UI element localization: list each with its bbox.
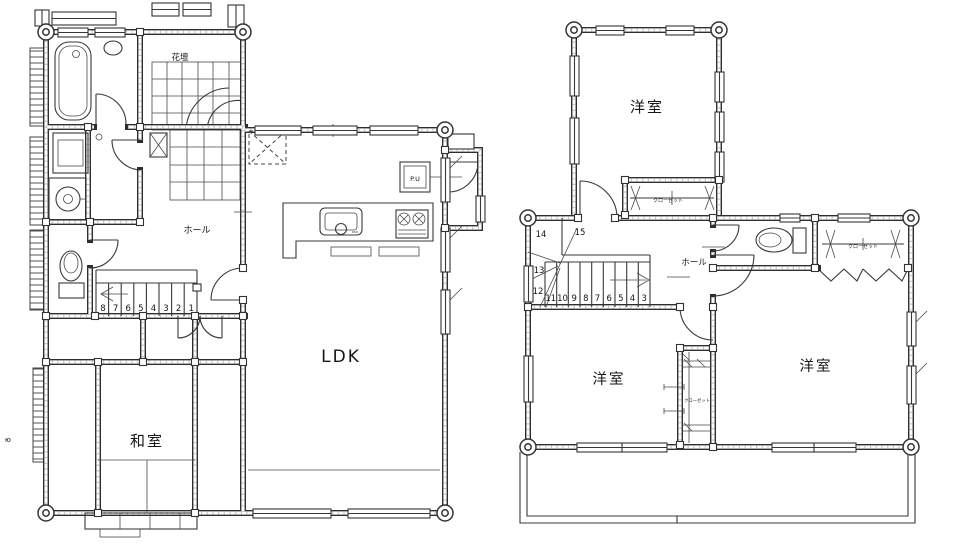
walls-1f	[46, 32, 480, 513]
stair-direction-arrow-1f	[101, 287, 128, 301]
bedroom-right-label: 洋室	[800, 358, 833, 375]
closet-middle	[664, 352, 711, 443]
ldk-label: LDK	[321, 347, 361, 367]
stair-number: 9	[571, 294, 576, 304]
floor-plan-canvas: 花壇 ホール LDK 和室 P.U 8 7 6 5 4 3 2 1	[0, 0, 959, 555]
hall-ldk-door	[211, 268, 243, 300]
stair-number: 13	[534, 266, 545, 276]
stair-number: 4	[151, 304, 156, 314]
stair-number: 10	[557, 294, 568, 304]
toilet-2f	[756, 228, 806, 253]
bedroom-top-door	[580, 181, 617, 218]
toilet-door-1f	[90, 240, 118, 268]
bathroom-door	[96, 94, 126, 124]
bath-sink	[104, 41, 122, 55]
washroom-door	[112, 140, 140, 170]
bedroom-left-door	[680, 307, 713, 340]
folding-doors	[818, 269, 908, 281]
stair-number: 8	[583, 294, 588, 304]
stair-number: 7	[595, 294, 600, 304]
storage-box-dashed	[249, 131, 286, 164]
windows-1f	[58, 28, 450, 518]
washroom	[49, 133, 140, 220]
stair-number: 11	[545, 294, 556, 304]
stair-number: 3	[163, 304, 168, 314]
stair-number: 5	[618, 294, 623, 304]
closet-right	[818, 230, 908, 281]
pipe-unit-label: P.U	[410, 175, 420, 183]
stair-number: 6	[606, 294, 611, 304]
stair-number: 5	[138, 304, 143, 314]
japanese-room-doors	[178, 316, 222, 338]
balcony	[520, 452, 915, 523]
floor2-plan: 洋室 クローゼット ホール 洋室 洋室 クローゼット クローゼット 11 10 …	[520, 22, 927, 523]
hall-2f-label: ホール	[681, 258, 707, 268]
floor-plan-page: 花壇 ホール LDK 和室 P.U 8 7 6 5 4 3 2 1	[0, 0, 959, 555]
shoe-cabinet	[150, 133, 167, 157]
stair-numbers-1f: 8 7 6 5 4 3 2 1	[100, 304, 194, 314]
staircase-1f	[96, 270, 201, 316]
stair-number: 2	[176, 304, 181, 314]
bathtub	[55, 42, 91, 120]
stair-direction-arrow-2f	[610, 273, 649, 287]
stair-number: 6	[125, 304, 130, 314]
kitchen-sink	[320, 208, 362, 235]
flower-bed-label: 花壇	[171, 52, 189, 63]
kitchen-counter	[283, 203, 433, 258]
bedroom-left-label: 洋室	[593, 371, 626, 388]
stair-number: 14	[536, 230, 547, 240]
stair-number: 12	[533, 287, 544, 297]
vent-boxes-1f	[35, 3, 244, 27]
stair-number: 3	[641, 294, 646, 304]
toilet-1f	[60, 251, 82, 281]
hall-1f-label: ホール	[183, 225, 210, 236]
stair-number: 7	[113, 304, 118, 314]
window-flags-2f	[916, 311, 927, 374]
windows-2f	[524, 26, 916, 452]
stair-number: 15	[575, 228, 586, 238]
washbasin	[56, 187, 80, 211]
japanese-room-label: 和室	[130, 432, 164, 450]
floor1-plan: 花壇 ホール LDK 和室 P.U 8 7 6 5 4 3 2 1	[30, 3, 485, 537]
closet-top-label: クローゼット	[653, 197, 683, 204]
bedroom-right-door	[713, 255, 754, 296]
bathroom	[55, 41, 126, 124]
kitchen	[283, 203, 433, 258]
japanese-room	[98, 460, 195, 513]
closet-right-label: クローゼット	[848, 243, 878, 250]
scan-artifact-mark: ю	[5, 436, 11, 444]
stair-number: 1	[188, 304, 193, 314]
stair-numbers-2f: 11 10 9 8 7 6 5 4 3 14 15 13 12	[533, 228, 647, 304]
closet-middle-label: クローゼット	[684, 397, 710, 404]
bedroom-top-label: 洋室	[630, 98, 664, 116]
entrance-porch-grid	[152, 62, 245, 200]
stair-number: 8	[100, 304, 105, 314]
entrance-step	[448, 134, 474, 149]
stair-number: 4	[630, 294, 635, 304]
